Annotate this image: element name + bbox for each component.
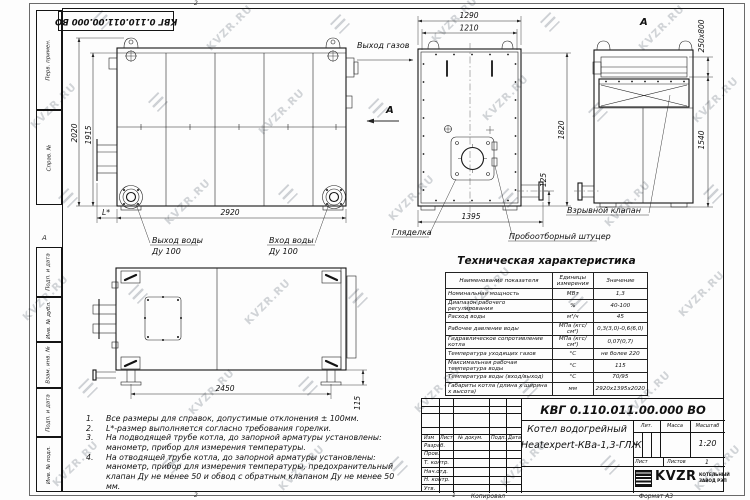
support-legs [93,370,341,385]
mass-label: Масса [660,423,690,429]
lifting-lug [326,38,340,48]
title-block: Изм Лист № докум. Подп. Дата Разраб. Про… [421,398,724,492]
label-water-in-dn: Ду 100 [268,247,298,256]
product-name-line2: Heatexpert-КВа-1,3-ГЛЖ [521,440,633,451]
col-header-izm: Изм [424,435,434,441]
col-header-podp: Подп. [491,435,506,441]
drawing-sheet: Перв. примен. Справ. № Подп. и дата Инв.… [0,0,750,500]
table-row: Расход водым³/ч45 [446,312,648,323]
top-hatch [144,296,182,341]
dim-plan-foot: 115 [353,396,362,411]
label-water-in: Вход воды [269,236,314,245]
flue-duct [347,276,356,358]
water-outlet-flange [120,186,143,209]
table-row: Диапазон рабочего регулирования%40-100 [446,299,648,312]
view-rear: А [566,17,713,215]
gas-duct [593,57,687,77]
corner-brackets [121,271,341,369]
table-header-row: Наименование показателя Единицы измерени… [446,273,648,289]
format-label: Формат А3 [628,493,684,500]
dim-front-width-inner: 1210 [459,24,478,33]
row-label-nkontr: Н. контр. [424,477,450,483]
sheets-label: Листов [667,459,686,465]
explosion-valve [599,79,689,107]
burner-flange-plan [93,299,116,339]
casing-bolts [423,54,517,202]
label-explosion-valve: Взрывной клапан [567,206,641,215]
table-row: Температура уходящих газов°Сне более 220 [446,349,648,360]
water-inlet-flange [323,186,346,209]
note-item: 3.На подводящей трубе котла, до запорной… [86,433,416,452]
lit-label: Лит. [633,423,660,429]
kvzr-logo-icon [635,470,652,487]
copied-label: Копировал [460,493,516,500]
table-row: Рабочее давление водыМПа (кгс/см²)0,3(3,… [446,323,648,336]
table-row: Гидравлическое сопротивление котлаМПа (к… [446,336,648,349]
label-sampling: Пробоотборный штуцер [509,232,611,241]
table-row: Температура воды (вход/выход)°С70/95 [446,372,648,383]
label-water-out: Выход воды [152,236,203,245]
dim-plan-length: 2450 [215,384,234,393]
dim-front-height: 1820 [557,120,566,139]
dim-rear-chimney: 250x800 [697,19,706,52]
dim-side-height-outer: 2020 [70,123,79,142]
dim-front-bottom: 1395 [461,212,480,221]
dim-side-l: L* [102,208,110,217]
col-header-list: Лист [440,435,453,441]
sight-glass [444,125,452,133]
row-label-nachotd: Нач.отд. [424,469,448,475]
label-sight-glass: Гляделка [392,228,432,237]
table-row: Максимальная рабочая температура воды°С1… [446,359,648,372]
sheet-label: Лист [635,459,648,465]
col-header-unit: Единицы измерения [552,273,593,289]
kvzr-logo-subtext: КОТЕЛЬНЫЙ ЗАВОД РЭП [699,472,730,484]
burner-flange [97,139,117,181]
row-label-tkontr: Т. контр. [424,460,449,466]
label-water-out-dn: Ду 100 [151,247,181,256]
sampling-fitting [492,142,497,150]
lifting-lug [124,38,138,48]
view-plan: 2450 115 [93,268,367,410]
tech-table: Наименование показателя Единицы измерени… [445,272,648,396]
note-item: 4.На отводящей трубе котла, до запорной … [86,453,416,492]
table-row: Номинальная мощностьМВт1,3 [446,289,648,300]
note-item: 1.Все размеры для справок, допустимые от… [86,414,416,424]
dim-rear-height: 1540 [697,130,706,149]
dim-front-width-outer: 1290 [459,11,478,20]
view-arrow-letter: А [385,105,394,116]
product-name-line1: Котел водогрейный [521,424,633,435]
kvzr-logo-text: KVZR [655,469,697,484]
col-header-value: Значение [593,273,647,289]
notes-list: 1.Все размеры для справок, допустимые от… [86,414,416,491]
col-header-data: Дата [508,435,521,441]
view-side: 2020 1915 2920 L* Выход воды Ду 100 Вход… [70,38,413,256]
dim-side-length: 2920 [220,208,239,217]
dim-front-pipe: 125 [539,173,548,188]
row-label-prov: Пров. [424,451,440,457]
doc-number: КВГ 0.110.011.00.000 ВО [521,399,725,420]
burner-door [451,137,494,180]
scale-value: 1:20 [690,439,725,448]
col-header-name: Наименование показателя [446,273,553,289]
tech-table-title: Техническая характеристика [445,255,648,267]
label-gas-out: Выход газов [357,41,410,50]
table-row: Габариты котла (длина х ширина х высота)… [446,383,648,396]
view-title-letter: А [639,17,648,28]
scale-label: Масштаб [690,423,725,429]
rear-pipe-stub [574,183,599,200]
col-header-dokum: № докум. [458,435,483,441]
row-label-razrab: Разраб. [424,443,445,449]
sheets-value: 1 [705,459,709,466]
dim-side-height-inner: 1915 [84,125,93,144]
note-item: 2.L*-размер выполняется согласно требова… [86,424,416,434]
row-label-utv: Утв. [424,486,435,492]
